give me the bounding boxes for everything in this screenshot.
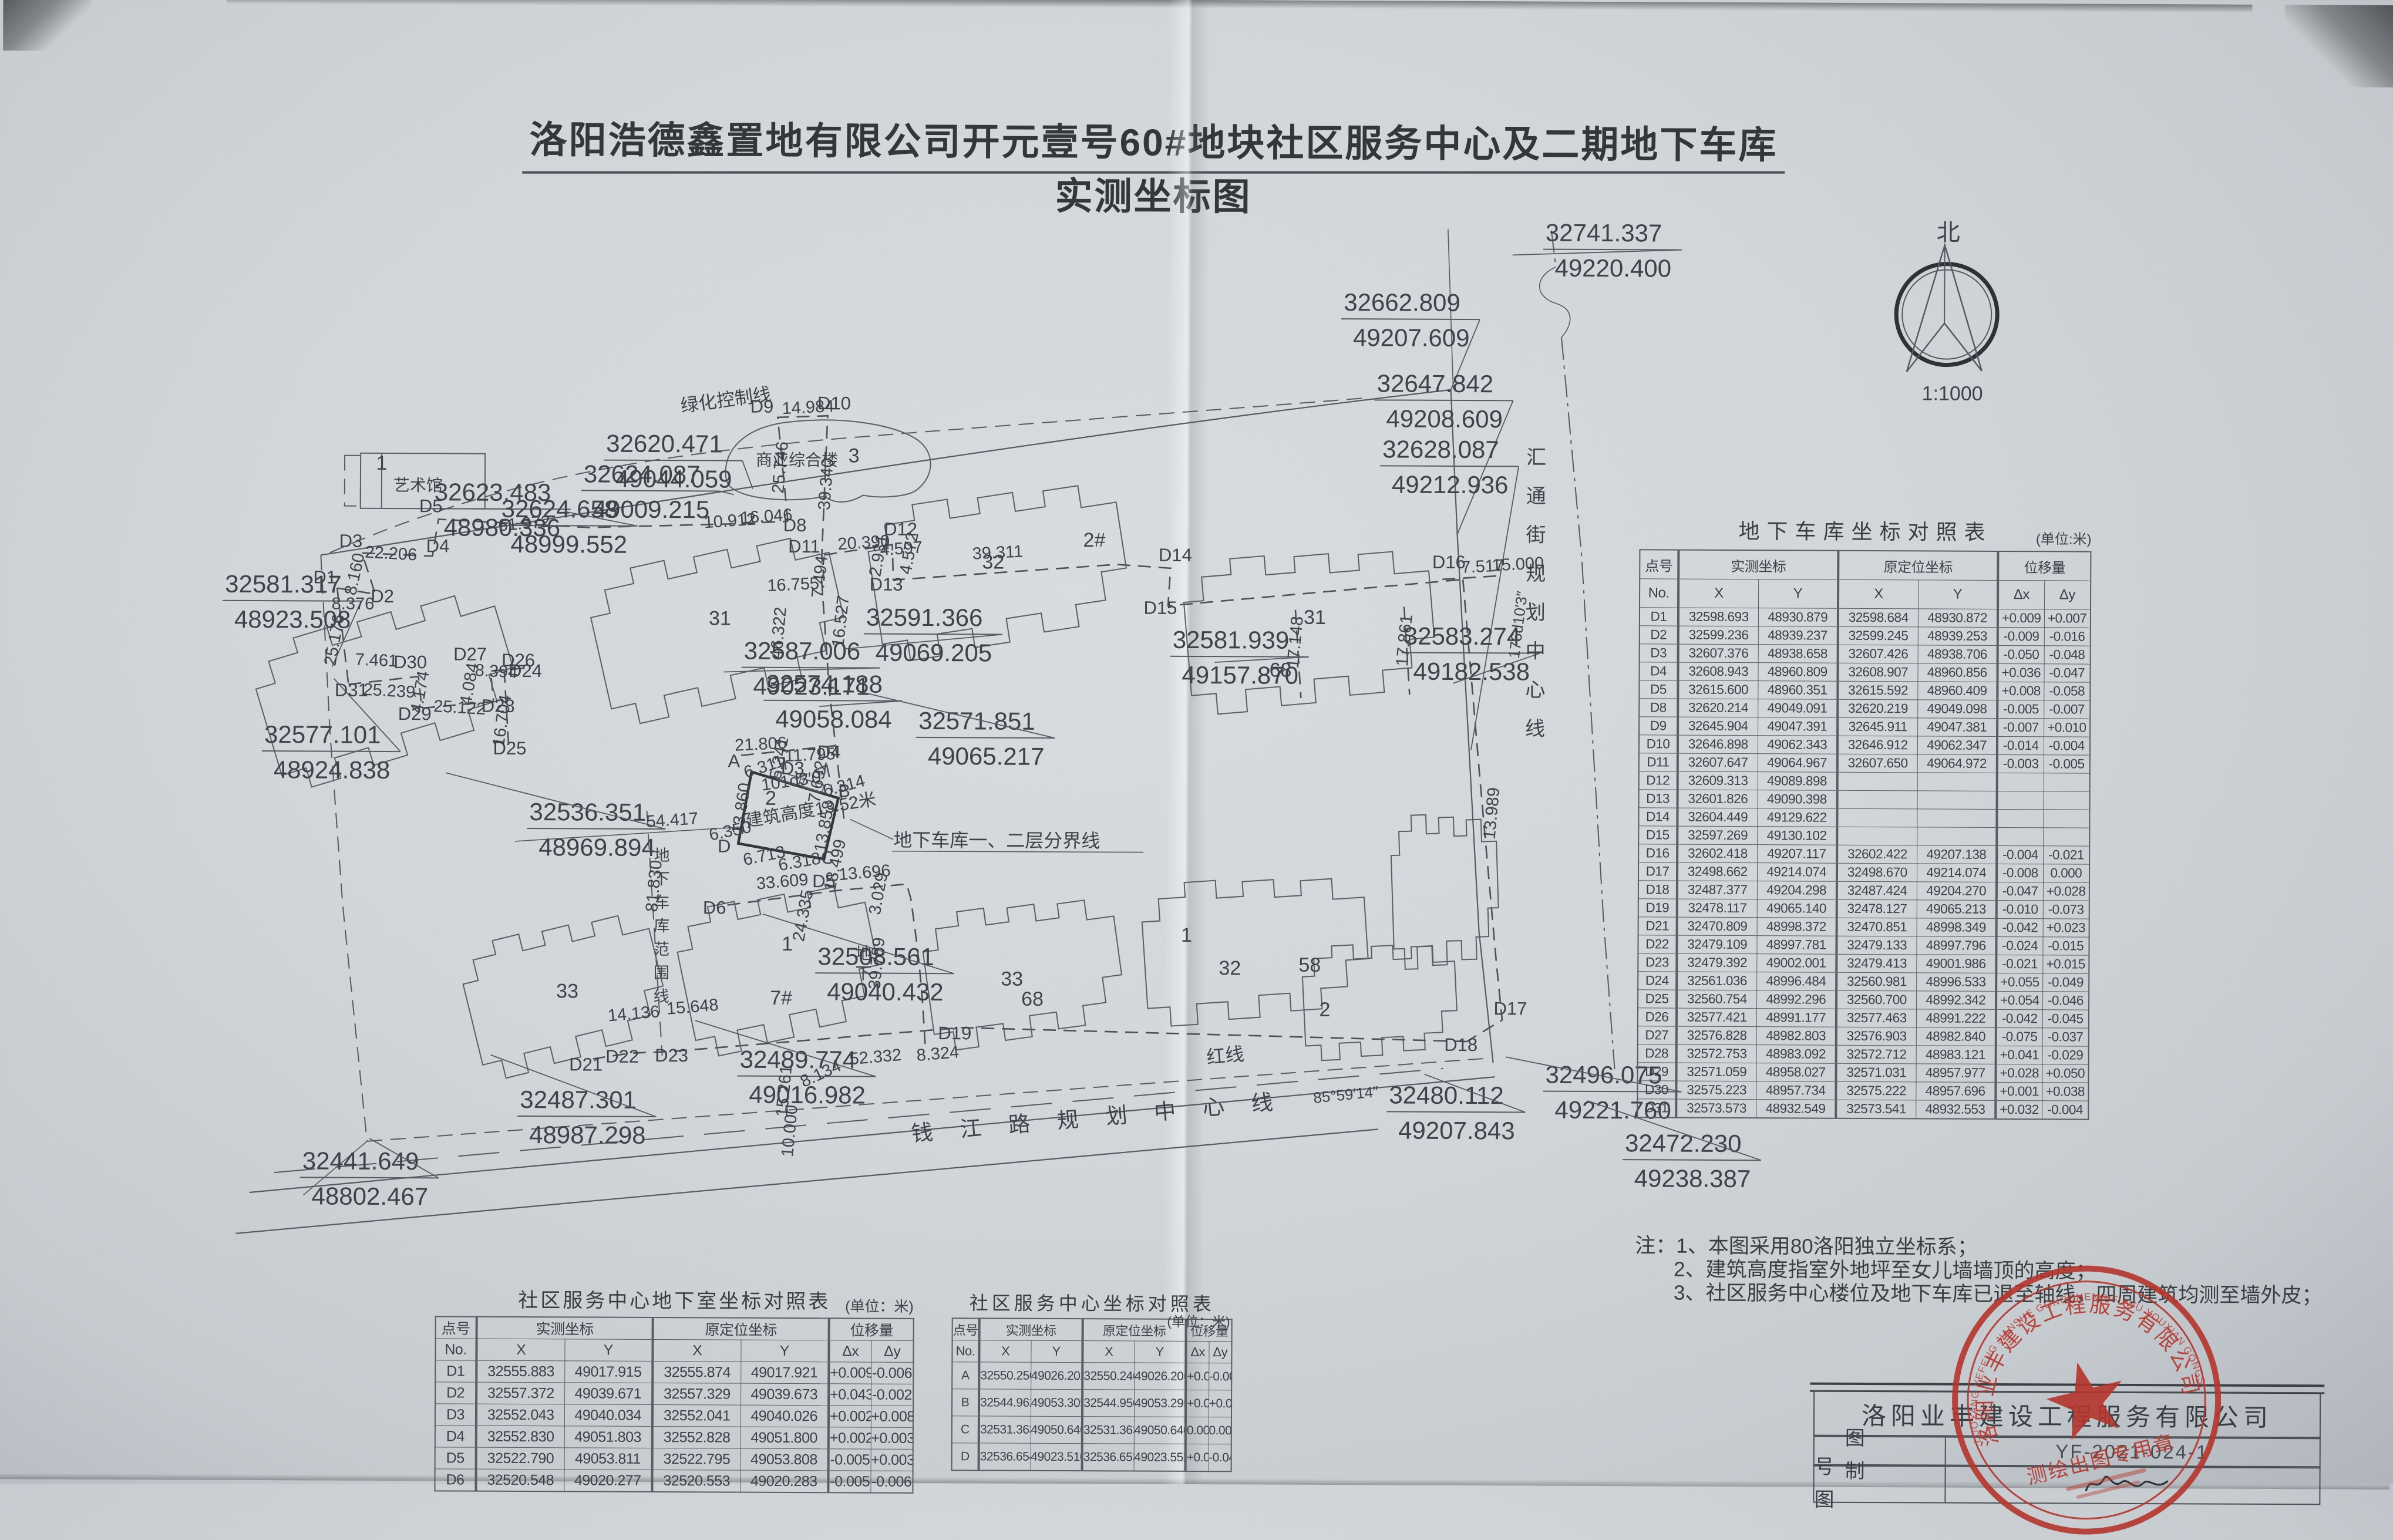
point-label: D11 bbox=[788, 536, 820, 557]
scale-label: 1:1000 bbox=[1922, 382, 1983, 405]
point-label: D4 bbox=[817, 742, 841, 762]
dimension-label: 8.324 bbox=[916, 1043, 960, 1065]
table-row: D1332601.82649090.398 bbox=[1639, 790, 2090, 810]
area-label: 地 bbox=[855, 944, 871, 962]
table-row: D2832572.75348983.09232572.71248983.121+… bbox=[1638, 1044, 2089, 1064]
building-label: 1 bbox=[1181, 924, 1192, 946]
point-label: D8 bbox=[783, 515, 807, 535]
dimension-label: 14.136 bbox=[607, 1002, 661, 1025]
point-label: D5 bbox=[812, 871, 836, 891]
basement-table-unit: (单位：米) bbox=[845, 1295, 914, 1316]
callout-underline bbox=[527, 828, 665, 829]
table-row: D932645.90449047.39132645.91149047.381-0… bbox=[1639, 717, 2090, 737]
callout-y-value: 49069.205 bbox=[876, 639, 992, 667]
building-label: 68 bbox=[1270, 659, 1292, 682]
point-label: D10 bbox=[817, 393, 851, 413]
callout-underline bbox=[1543, 250, 1682, 250]
table-row: D532522.79049053.81132522.79549053.808-0… bbox=[435, 1447, 913, 1471]
callout-y-value: 48999.552 bbox=[510, 530, 627, 558]
callout-y-value: 48924.838 bbox=[274, 756, 391, 784]
callout-underline bbox=[300, 1177, 439, 1178]
area-label: 范 bbox=[654, 941, 669, 958]
road-edge-lower bbox=[235, 1124, 1378, 1238]
garage-table-title: 地下车库坐标对照表 bbox=[1639, 514, 2091, 546]
building-label: 7# bbox=[770, 987, 792, 1009]
center-table-section: 社区服务中心坐标对照表 (单位：米) 点号实测坐标原定位坐标位移量No.XYXY… bbox=[951, 1288, 1233, 1472]
point-label: D17 bbox=[1494, 998, 1527, 1019]
area-label: 下 bbox=[855, 964, 871, 982]
callout-underline bbox=[1375, 400, 1513, 400]
point-label: D21 bbox=[569, 1054, 603, 1074]
north-arrow: 北 1:1000 bbox=[1886, 219, 2010, 413]
garage-boundary-s bbox=[593, 1026, 1467, 1063]
table-row: D632520.54849020.27732520.55349020.283-0… bbox=[435, 1469, 913, 1493]
point-label: D31 bbox=[335, 680, 368, 700]
callout-x-value: 32591.366 bbox=[866, 604, 983, 632]
point-label: D bbox=[718, 835, 731, 856]
table-row: D1232609.31349089.898 bbox=[1639, 771, 2090, 791]
north-ring-outer bbox=[1896, 264, 1998, 365]
area-label: 线 bbox=[654, 988, 669, 1005]
table-row: D1732498.66249214.07432498.67049214.074-… bbox=[1638, 862, 2089, 882]
area-label: 红线 bbox=[1206, 1043, 1245, 1068]
area-label: 围 bbox=[654, 964, 669, 982]
point-label: D25 bbox=[493, 738, 526, 759]
seal-star bbox=[2039, 1353, 2132, 1444]
callout-y-value: 48969.894 bbox=[538, 833, 655, 861]
building-label: 58 bbox=[1298, 954, 1321, 976]
point-label: D29 bbox=[398, 703, 432, 724]
building-outline bbox=[1142, 878, 1368, 1027]
garage-coord-table: 点号实测坐标原定位坐标位移量No.XYXYΔxΔyD132598.6934893… bbox=[1637, 549, 2091, 1120]
point-label: D22 bbox=[605, 1046, 639, 1067]
point-label: D13 bbox=[870, 574, 903, 595]
point-label: C bbox=[821, 847, 834, 868]
point-label: D28 bbox=[482, 696, 515, 716]
north-label: 北 bbox=[1937, 220, 1960, 245]
point-label: D4 bbox=[426, 535, 450, 556]
dimension-label: 7.461 bbox=[355, 650, 398, 670]
area-label: 85°59′14″ bbox=[1312, 1083, 1379, 1107]
north-arrow-axis bbox=[1944, 245, 1945, 323]
table-row: D2232479.10948997.78132479.13348997.796-… bbox=[1638, 935, 2089, 955]
callout-x-value: 32620.471 bbox=[606, 430, 723, 458]
plan-labels: 32741.33749220.40032662.80949207.6093264… bbox=[220, 213, 1765, 1216]
area-label: 艺术馆 bbox=[393, 476, 443, 494]
divider-underline bbox=[892, 851, 1143, 852]
table-row: D232557.37249039.67132557.32949039.673+0… bbox=[435, 1382, 913, 1406]
point-label: D5 bbox=[419, 496, 443, 516]
dimension-label: 15.648 bbox=[666, 996, 719, 1019]
callout-x-value: 32536.351 bbox=[529, 798, 646, 826]
dimension-label: 16.755 bbox=[767, 574, 820, 595]
callout-y-value: 49220.400 bbox=[1554, 254, 1671, 282]
callout-y-value: 49065.217 bbox=[928, 742, 1045, 770]
table-row: D2532560.75448992.29632560.70048992.342+… bbox=[1638, 990, 2089, 1010]
qianjiang-centerline bbox=[274, 1063, 1443, 1178]
table-row: D1032646.89849062.34332646.91249062.347-… bbox=[1639, 735, 2090, 755]
street-label: 钱江路规划中心线 bbox=[910, 1088, 1301, 1146]
callout-x-value: 32574.188 bbox=[766, 670, 883, 698]
point-label: D16 bbox=[1432, 552, 1466, 572]
table-row: D432552.83049051.80332552.82849051.800+0… bbox=[435, 1426, 913, 1450]
point-label: A bbox=[728, 751, 740, 771]
callout-y-value: 49208.609 bbox=[1386, 405, 1503, 433]
area-label: 库 bbox=[654, 917, 669, 935]
table-row: D532615.60048960.35132615.59248960.409+0… bbox=[1639, 680, 2090, 700]
center-table-unit: (单位：米) bbox=[1167, 1310, 1230, 1330]
center-coord-table: 点号实测坐标原定位坐标位移量No.XYXYΔxΔyA32550.25049026… bbox=[951, 1317, 1233, 1472]
street-label: 汇 bbox=[1526, 446, 1546, 469]
garage-table-unit: (单位:米) bbox=[2036, 527, 2092, 548]
basement-coord-table: 点号实测坐标原定位坐标位移量No.XYXYΔxΔyD132555.8834901… bbox=[434, 1316, 914, 1494]
note-prefix: 注： bbox=[1635, 1234, 1676, 1257]
callout-x-value: 32583.274 bbox=[1404, 622, 1521, 651]
table-row: D3132573.57348932.54932573.54148932.553+… bbox=[1637, 1099, 2088, 1120]
dimension-label: 8.376 bbox=[332, 595, 375, 614]
callout-y-value: 49238.387 bbox=[1634, 1164, 1751, 1192]
point-label: D3 bbox=[781, 758, 805, 779]
table-row: A32550.25049026.20232550.24649026.206+0.… bbox=[952, 1362, 1231, 1390]
divider-leader bbox=[850, 819, 893, 839]
callout-x-value: 32577.101 bbox=[264, 720, 381, 749]
point-label: D3 bbox=[339, 531, 363, 551]
table-row: D332607.37648938.65832607.42648938.706-0… bbox=[1640, 644, 2091, 664]
point-label: D30 bbox=[393, 652, 427, 672]
table-row: D132598.69348930.87932598.68448930.872+0… bbox=[1640, 608, 2091, 628]
callout-underline bbox=[1380, 466, 1519, 466]
point-label: D26 bbox=[502, 650, 535, 670]
building-label: 3 bbox=[849, 444, 860, 467]
road-edge-upper bbox=[250, 1071, 1495, 1198]
callout-underline bbox=[262, 751, 400, 752]
point-label: D18 bbox=[1444, 1034, 1477, 1055]
table-row: D2332479.39249002.00132479.41349001.986-… bbox=[1638, 953, 2089, 973]
table-row: D2632577.42148991.17732577.46348991.222-… bbox=[1638, 1008, 2089, 1028]
building-label: 68 bbox=[1021, 988, 1044, 1010]
callout-x-value: 32487.301 bbox=[520, 1086, 637, 1114]
callout-underline bbox=[864, 634, 1002, 635]
basement-table-title: 社区服务中心地下室坐标对照表 bbox=[435, 1283, 914, 1315]
table-row: D2432561.03648996.48432560.98148996.533+… bbox=[1638, 972, 2089, 992]
dimension-label: 13.989 bbox=[1480, 787, 1504, 840]
table-row: D232599.23648939.23732599.24548939.253-0… bbox=[1640, 626, 2091, 646]
dimension-label: 52.332 bbox=[849, 1046, 902, 1069]
point-label: D19 bbox=[938, 1023, 971, 1043]
point-label: D12 bbox=[884, 519, 917, 540]
huitong-centerline-2 bbox=[1559, 338, 1618, 1069]
callout-y-value: 48802.467 bbox=[312, 1182, 429, 1210]
building-label: 1 bbox=[376, 452, 388, 474]
table-row: D832620.21449049.09132620.21949049.098-0… bbox=[1639, 699, 2090, 719]
dimension-label: 25.239 bbox=[363, 680, 416, 702]
building-label: 33 bbox=[556, 980, 578, 1002]
callout-y-value: 48987.298 bbox=[529, 1121, 646, 1149]
table-row: B32544.96249053.30532544.95649053.295+0.… bbox=[952, 1389, 1231, 1417]
area-label: 地下车库一、二层分界线 bbox=[893, 830, 1100, 852]
table-row: D1432604.44949129.622 bbox=[1638, 808, 2089, 828]
street-label: 中 bbox=[1526, 640, 1546, 662]
street-label: 通 bbox=[1526, 485, 1546, 507]
street-label: 划 bbox=[1526, 601, 1546, 624]
callout-y-value: 49009.215 bbox=[593, 496, 710, 524]
callout-y-value: 49040.432 bbox=[827, 978, 944, 1006]
north-ring-inner bbox=[1902, 269, 1992, 359]
street-label: 心 bbox=[1525, 679, 1545, 701]
table-row: D1532597.26949130.102 bbox=[1638, 826, 2089, 846]
point-label: D2 bbox=[371, 586, 394, 606]
callout-x-value: 32741.337 bbox=[1546, 219, 1662, 247]
building-label: 1 bbox=[782, 933, 793, 955]
callout-underline bbox=[581, 490, 720, 491]
building-label: 33 bbox=[1001, 968, 1023, 990]
dimension-label: 54.417 bbox=[645, 809, 699, 831]
building-label: 32 bbox=[1219, 957, 1241, 979]
dimension-label: 22.206 bbox=[365, 543, 418, 565]
callout-underline bbox=[517, 1116, 656, 1117]
table-row: D2932571.05948958.02732571.03148957.977+… bbox=[1637, 1063, 2088, 1083]
area-label: 车 bbox=[654, 894, 669, 911]
area-label: 地 bbox=[654, 847, 670, 864]
callout-y-value: 49207.843 bbox=[1398, 1117, 1515, 1145]
callout-underline bbox=[1386, 1111, 1525, 1112]
callout-x-value: 32624.087 bbox=[584, 460, 701, 488]
table-row: D1832487.37749204.29832487.42449204.270-… bbox=[1638, 881, 2089, 901]
table-row: D1632602.41849207.11732602.42249207.138-… bbox=[1638, 844, 2089, 864]
point-label: D1 bbox=[313, 567, 336, 587]
point-label: D15 bbox=[1143, 598, 1177, 618]
building-label: 32 bbox=[982, 551, 1004, 573]
callout-leader bbox=[742, 461, 753, 489]
callout-y-value: 49207.609 bbox=[1353, 323, 1470, 352]
building-label: 2# bbox=[1083, 529, 1106, 551]
building-label: 31 bbox=[1304, 606, 1326, 629]
basement-table-section: 社区服务中心地下室坐标对照表 (单位：米) 点号实测坐标原定位坐标位移量No.X… bbox=[434, 1283, 914, 1494]
note-line-1: 注：1、本图采用80洛阳独立坐标系； bbox=[1635, 1235, 2323, 1259]
table-row: D1132607.64749064.96732607.65049064.972-… bbox=[1639, 753, 2090, 773]
table-row: D332552.04349040.03432552.04149040.026+0… bbox=[435, 1404, 913, 1428]
art-gallery-ext bbox=[345, 456, 361, 506]
drawing-sheet: 洛阳浩德鑫置地有限公司开元壹号60#地块社区服务中心及二期地下车库实测坐标图 bbox=[0, 0, 2393, 1490]
area-label: 商业综合楼 bbox=[756, 451, 838, 470]
table-row: D132555.88349017.91532555.87449017.921+0… bbox=[435, 1360, 913, 1384]
callout-x-value: 32662.809 bbox=[1344, 288, 1460, 316]
callout-x-value: 32571.851 bbox=[918, 707, 1035, 735]
callout-x-value: 32480.112 bbox=[1389, 1081, 1504, 1109]
callout-x-value: 32441.649 bbox=[302, 1147, 419, 1175]
table-row: D432608.94348960.80932608.90748960.856+0… bbox=[1639, 662, 2090, 682]
callout-x-value: 32628.087 bbox=[1382, 435, 1499, 463]
point-label: D14 bbox=[1159, 545, 1192, 565]
street-label: 规 bbox=[1526, 562, 1546, 585]
table-row: D2732576.82848982.80332576.90348982.840-… bbox=[1638, 1026, 2089, 1046]
table-row: C32531.36349050.64032531.36349050.6400.0… bbox=[952, 1416, 1231, 1444]
callout-underline bbox=[742, 668, 880, 668]
callout-x-value: 32581.939 bbox=[1173, 626, 1290, 654]
point-label: D27 bbox=[453, 643, 487, 664]
street-label: 街 bbox=[1526, 524, 1546, 546]
company-seal: 洛阳业丰建设工程服务有限公司 LUOYANG YEFENG JIANSHE GO… bbox=[1947, 1261, 2226, 1539]
dimension-label: 10.000 bbox=[778, 1104, 802, 1158]
callout-underline bbox=[763, 700, 902, 701]
callout-y-value: 49212.936 bbox=[1392, 470, 1509, 498]
drafter-label: 制图 bbox=[1814, 1465, 1946, 1502]
callout-underline bbox=[916, 737, 1055, 738]
point-label: D6 bbox=[703, 897, 726, 918]
callout-x-value: 32647.842 bbox=[1377, 369, 1494, 397]
building-label: 31 bbox=[709, 607, 731, 629]
area-label: 下 bbox=[654, 870, 669, 888]
callout-underline bbox=[1341, 319, 1480, 319]
table-row: D2132470.80948998.37232470.85148998.349-… bbox=[1638, 917, 2089, 937]
callout-y-value: 49058.084 bbox=[775, 705, 892, 733]
building-label: 2 bbox=[1319, 999, 1330, 1021]
street-label: 线 bbox=[1525, 717, 1545, 740]
point-label: D23 bbox=[655, 1045, 688, 1066]
callout-y-value: 49182.538 bbox=[1413, 658, 1530, 686]
garage-table-section: 地下车库坐标对照表 (单位:米) 点号实测坐标原定位坐标位移量No.XYXYΔx… bbox=[1637, 514, 2091, 1120]
table-row: D1932478.11749065.14032478.12749065.213-… bbox=[1638, 899, 2089, 919]
callout-underline bbox=[1623, 1160, 1761, 1160]
table-row: D32536.65449023.51032536.65349023.552+0.… bbox=[952, 1443, 1231, 1472]
table-row: D3032575.22348957.73432575.22248957.696+… bbox=[1637, 1081, 2088, 1101]
